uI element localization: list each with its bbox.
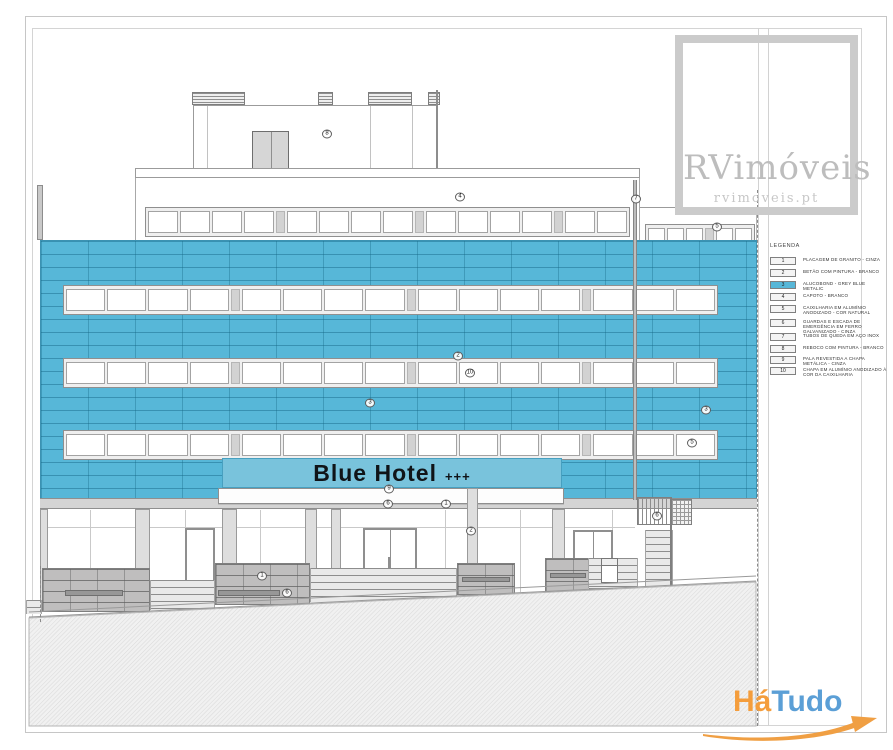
legend-item: 4CAPOTO - BRANCO xyxy=(770,293,887,301)
antenna-mast xyxy=(436,90,438,170)
window-pane xyxy=(418,289,457,311)
legend-label: CAPOTO - BRANCO xyxy=(803,293,887,298)
window-mullion xyxy=(415,211,424,233)
legend-item: 1PLACAGEM DE GRANITO - CINZA xyxy=(770,257,887,265)
door-split-line xyxy=(271,132,272,169)
window-pane xyxy=(148,362,187,384)
keynote-marker: 7 xyxy=(631,195,641,204)
window-pane xyxy=(593,434,632,456)
keynote-marker: 10 xyxy=(465,369,475,378)
window-pane xyxy=(283,289,322,311)
window-pane xyxy=(500,362,539,384)
top-floor-parapet xyxy=(135,168,640,178)
window-pane xyxy=(383,211,413,233)
window-pane xyxy=(418,434,457,456)
downspout-pipe xyxy=(633,180,637,500)
window-pane xyxy=(565,211,595,233)
legend-label: REBOCO COM PINTURA - BRANCO xyxy=(803,345,887,350)
window-pane xyxy=(426,211,456,233)
keynote-marker: 4 xyxy=(455,193,465,202)
window-pane xyxy=(66,289,105,311)
watermark-box: RVimóveis rvimoveis.pt xyxy=(675,35,858,215)
watermark-site: rvimoveis.pt xyxy=(683,191,850,206)
hatudo-swoosh-icon xyxy=(695,710,890,750)
window-pane xyxy=(148,434,187,456)
window-pane xyxy=(365,362,404,384)
window-pane xyxy=(418,362,457,384)
window-pane xyxy=(242,289,281,311)
window-pane xyxy=(635,362,674,384)
property-line-right xyxy=(757,190,758,726)
window-pane xyxy=(522,211,552,233)
window-pane xyxy=(107,289,146,311)
window-mullion xyxy=(231,362,240,384)
terrain-slope xyxy=(25,566,758,732)
window-mullion xyxy=(554,211,563,233)
keynote-marker: 1 xyxy=(441,500,451,509)
window-mullion xyxy=(407,362,416,384)
window-mullion xyxy=(582,362,591,384)
window-mullion xyxy=(582,434,591,456)
keynote-marker: 3 xyxy=(701,406,711,415)
roof-vent-louver xyxy=(368,92,412,105)
legend-item: 9PALA REVESTIDA A CHAPA METÁLICA - CINZA xyxy=(770,356,887,366)
window-pane xyxy=(242,362,281,384)
window-pane xyxy=(676,362,715,384)
legend-item: 8REBOCO COM PINTURA - BRANCO xyxy=(770,345,887,353)
window-pane xyxy=(459,289,498,311)
penthouse-joint xyxy=(207,106,208,169)
window-pane xyxy=(180,211,210,233)
keynote-marker: 2 xyxy=(453,352,463,361)
legend-chip: 10 xyxy=(770,367,796,375)
elevation-drawing-sheet: Blue Hotel +++ xyxy=(0,0,893,750)
penthouse-wall xyxy=(193,105,437,170)
keynote-marker: 6 xyxy=(652,512,662,521)
hotel-sign-stars: +++ xyxy=(445,469,471,484)
window-pane xyxy=(66,362,105,384)
keynote-marker: 5 xyxy=(687,439,697,448)
legend-label: PALA REVESTIDA A CHAPA METÁLICA - CINZA xyxy=(803,356,887,366)
window-pane xyxy=(351,211,381,233)
window-pane xyxy=(283,434,322,456)
window-pane xyxy=(190,289,229,311)
legend-chip: 1 xyxy=(770,257,796,265)
window-pane xyxy=(458,211,488,233)
legend-title: LEGENDA xyxy=(770,243,888,249)
legend-label: TUBOS DE QUEDA EM AÇO INOX xyxy=(803,333,887,338)
window-strip-top-floor xyxy=(145,207,630,237)
window-pane xyxy=(500,434,539,456)
window-strip-floor2 xyxy=(63,358,718,388)
window-pane xyxy=(676,289,715,311)
legend-label: ALUCOBOND - GREY BLUE METALIC xyxy=(803,281,887,291)
window-pane xyxy=(500,289,539,311)
keynote-marker: 3 xyxy=(365,399,375,408)
window-pane xyxy=(365,289,404,311)
window-pane xyxy=(324,362,363,384)
legend-label: BETÃO COM PINTURA - BRANCO xyxy=(803,269,887,274)
window-pane xyxy=(635,434,674,456)
keynote-marker: 8 xyxy=(322,130,332,139)
window-pane xyxy=(324,434,363,456)
watermark-name: RVimóveis xyxy=(683,148,850,188)
window-pane xyxy=(593,289,632,311)
legend-item: 10CHAPA EM ALUMÍNIO ANODIZADO À COR DA C… xyxy=(770,367,887,377)
penthouse-joint xyxy=(370,106,371,169)
legend-chip: 5 xyxy=(770,305,796,313)
keynote-marker: 6 xyxy=(282,589,292,598)
window-pane xyxy=(190,434,229,456)
legend-chip: 3 xyxy=(770,281,796,289)
legend-item: 7TUBOS DE QUEDA EM AÇO INOX xyxy=(770,333,887,341)
window-mullion xyxy=(276,211,285,233)
window-pane xyxy=(287,211,317,233)
emergency-stair-landing xyxy=(671,499,692,525)
keynote-marker: 9 xyxy=(384,485,394,494)
window-mullion xyxy=(582,289,591,311)
hotel-sign-band: Blue Hotel +++ xyxy=(222,458,562,488)
window-pane xyxy=(66,434,105,456)
window-pane xyxy=(212,211,242,233)
legend-chip: 8 xyxy=(770,345,796,353)
window-pane xyxy=(541,289,580,311)
keynote-marker: 2 xyxy=(466,527,476,536)
window-pane xyxy=(635,289,674,311)
legend-label: CAIXILHARIA EM ALUMÍNIO ANODIZADO - COR … xyxy=(803,305,887,315)
window-pane xyxy=(107,362,146,384)
legend-chip: 6 xyxy=(770,319,796,327)
roof-vent-louver xyxy=(318,92,333,105)
window-pane xyxy=(597,211,627,233)
legend-chip: 4 xyxy=(770,293,796,301)
window-pane xyxy=(148,211,178,233)
legend-panel: LEGENDA 1PLACAGEM DE GRANITO - CINZA2BET… xyxy=(770,243,888,375)
hotel-sign-name: Blue Hotel xyxy=(313,460,437,487)
window-mullion xyxy=(407,289,416,311)
window-pane xyxy=(244,211,274,233)
legend-chip: 2 xyxy=(770,269,796,277)
penthouse-joint xyxy=(412,106,413,169)
window-strip-floor1 xyxy=(63,430,718,460)
roof-vent-louver xyxy=(192,92,245,105)
window-pane xyxy=(541,362,580,384)
window-strip-floor3 xyxy=(63,285,718,315)
window-pane xyxy=(324,289,363,311)
legend-chip: 7 xyxy=(770,333,796,341)
window-pane xyxy=(283,362,322,384)
window-pane xyxy=(593,362,632,384)
window-pane xyxy=(190,362,229,384)
legend-chip: 9 xyxy=(770,356,796,364)
window-pane xyxy=(541,434,580,456)
window-pane xyxy=(148,289,187,311)
window-pane xyxy=(459,434,498,456)
window-pane xyxy=(242,434,281,456)
legend-item: 3ALUCOBOND - GREY BLUE METALIC xyxy=(770,281,887,291)
keynote-marker: 1 xyxy=(257,572,267,581)
window-pane xyxy=(490,211,520,233)
keynote-marker: 6 xyxy=(383,500,393,509)
window-mullion xyxy=(407,434,416,456)
legend-item: 5CAIXILHARIA EM ALUMÍNIO ANODIZADO - COR… xyxy=(770,305,887,315)
window-pane xyxy=(365,434,404,456)
legend-item: 2BETÃO COM PINTURA - BRANCO xyxy=(770,269,887,277)
keynote-marker: 5 xyxy=(712,223,722,232)
legend-label: PLACAGEM DE GRANITO - CINZA xyxy=(803,257,887,262)
roof-access-door xyxy=(252,131,289,170)
left-vent-stack xyxy=(37,185,43,240)
hatudo-logo: HáTudo xyxy=(690,680,890,750)
roof-vent-louver xyxy=(428,92,440,105)
window-mullion xyxy=(231,289,240,311)
window-mullion xyxy=(231,434,240,456)
property-line-left xyxy=(40,566,41,622)
cabinet-cap xyxy=(602,559,617,566)
legend-label: CHAPA EM ALUMÍNIO ANODIZADO À COR DA CAI… xyxy=(803,367,887,377)
window-pane xyxy=(319,211,349,233)
window-pane xyxy=(107,434,146,456)
